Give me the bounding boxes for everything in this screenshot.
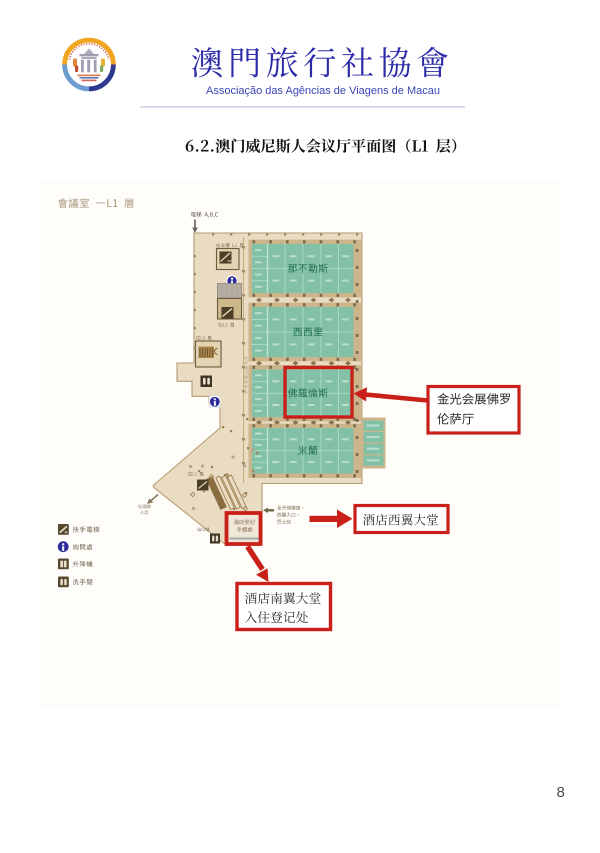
svg-text:8: 8 bbox=[557, 784, 565, 801]
svg-text:Associação das Agências de Via: Associação das Agências de Viagens de Ma… bbox=[206, 85, 440, 97]
